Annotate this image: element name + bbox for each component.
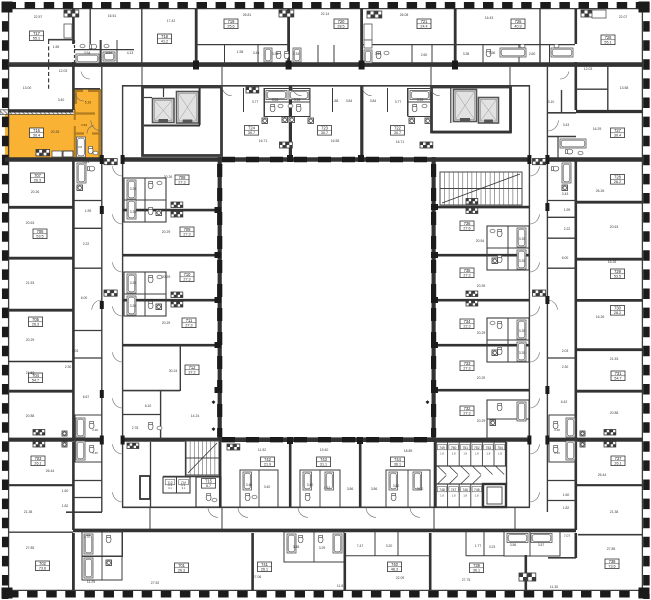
- svg-text:27.06: 27.06: [253, 575, 262, 579]
- svg-text:12.03: 12.03: [584, 67, 593, 71]
- svg-text:3.41: 3.41: [375, 52, 382, 56]
- svg-text:54.7: 54.7: [614, 377, 621, 381]
- svg-text:21.38: 21.38: [24, 510, 33, 514]
- svg-text:711: 711: [186, 318, 193, 323]
- svg-text:16.51: 16.51: [108, 14, 117, 18]
- svg-text:41.2: 41.2: [161, 40, 168, 44]
- svg-text:1.8: 1.8: [475, 452, 479, 456]
- svg-text:3.34: 3.34: [106, 51, 113, 55]
- svg-text:737: 737: [615, 456, 623, 461]
- svg-text:738: 738: [609, 559, 617, 564]
- svg-text:53.5: 53.5: [36, 235, 43, 239]
- svg-text:3.35: 3.35: [554, 451, 560, 455]
- svg-text:30.4: 30.4: [33, 134, 40, 138]
- svg-text:54.7: 54.7: [32, 379, 39, 383]
- svg-text:6.42: 6.42: [561, 400, 568, 404]
- svg-text:16.29: 16.29: [593, 127, 602, 131]
- svg-text:7.07: 7.07: [564, 534, 571, 538]
- svg-text:26.26: 26.26: [596, 189, 605, 193]
- svg-text:21.53: 21.53: [26, 371, 35, 375]
- svg-text:19.40: 19.40: [320, 448, 329, 452]
- svg-text:30.24: 30.24: [169, 369, 178, 373]
- svg-text:21.53: 21.53: [26, 281, 35, 285]
- svg-text:701: 701: [178, 563, 186, 568]
- svg-text:4.13: 4.13: [127, 51, 134, 55]
- svg-text:706: 706: [37, 229, 45, 234]
- svg-text:703: 703: [35, 456, 43, 461]
- svg-text:3.23: 3.23: [489, 545, 496, 549]
- svg-text:748: 748: [439, 488, 445, 492]
- svg-text:6.00: 6.00: [562, 256, 569, 260]
- svg-text:26.44: 26.44: [598, 473, 607, 477]
- svg-text:40.9: 40.9: [514, 25, 521, 29]
- svg-text:20.29: 20.29: [477, 331, 486, 335]
- svg-text:3.34: 3.34: [272, 52, 279, 56]
- svg-text:735: 735: [464, 268, 472, 273]
- svg-text:20.29: 20.29: [162, 230, 171, 234]
- svg-text:20.29: 20.29: [477, 376, 486, 380]
- svg-text:719: 719: [228, 19, 236, 24]
- svg-text:3.35: 3.35: [519, 237, 526, 241]
- svg-text:25.6: 25.6: [227, 25, 234, 29]
- svg-text:705: 705: [32, 317, 40, 322]
- svg-text:727: 727: [614, 128, 622, 133]
- svg-text:22.3: 22.3: [463, 325, 470, 329]
- svg-text:3.84: 3.84: [370, 99, 377, 103]
- svg-text:1.8: 1.8: [463, 494, 467, 498]
- svg-text:1.8: 1.8: [452, 452, 456, 456]
- svg-text:750: 750: [451, 446, 457, 450]
- svg-text:718: 718: [161, 34, 169, 39]
- svg-text:3.38: 3.38: [463, 52, 470, 56]
- svg-text:20.29: 20.29: [162, 275, 171, 279]
- svg-text:3.86: 3.86: [371, 487, 378, 491]
- svg-text:1.8: 1.8: [452, 494, 456, 498]
- svg-text:741: 741: [261, 562, 269, 567]
- svg-text:7.70: 7.70: [84, 535, 91, 539]
- svg-text:27.52: 27.52: [151, 581, 160, 585]
- svg-text:37.2: 37.2: [188, 371, 195, 375]
- svg-text:3.34: 3.34: [272, 98, 279, 102]
- svg-text:722: 722: [394, 125, 402, 130]
- svg-text:3.43: 3.43: [563, 123, 570, 127]
- svg-text:26.3: 26.3: [32, 323, 39, 327]
- svg-text:3.40: 3.40: [58, 98, 65, 102]
- svg-text:754: 754: [497, 446, 503, 450]
- svg-text:26.1: 26.1: [34, 462, 41, 466]
- svg-text:1.99: 1.99: [85, 209, 92, 213]
- svg-text:3.35: 3.35: [519, 259, 526, 263]
- svg-text:1.98: 1.98: [237, 50, 244, 54]
- svg-text:3.34: 3.34: [294, 98, 301, 102]
- svg-text:3.86: 3.86: [347, 487, 354, 491]
- svg-text:11.25: 11.25: [87, 580, 95, 584]
- svg-text:753: 753: [486, 446, 492, 450]
- svg-text:22.07: 22.07: [619, 15, 628, 19]
- svg-text:27.3: 27.3: [463, 412, 470, 416]
- svg-text:17.42: 17.42: [167, 19, 176, 23]
- svg-text:742: 742: [264, 457, 272, 462]
- svg-text:20.88: 20.88: [610, 411, 619, 415]
- svg-text:715: 715: [205, 478, 213, 483]
- svg-text:5.7: 5.7: [206, 484, 211, 488]
- svg-text:73.6: 73.6: [39, 567, 46, 571]
- svg-text:26.81: 26.81: [243, 13, 252, 17]
- svg-text:736: 736: [464, 221, 472, 226]
- svg-text:731: 731: [615, 371, 623, 376]
- svg-text:27.3: 27.3: [185, 324, 192, 328]
- svg-text:20.63: 20.63: [26, 221, 35, 225]
- svg-text:3.88: 3.88: [293, 545, 300, 549]
- svg-text:4.33: 4.33: [324, 486, 331, 490]
- svg-text:3.54: 3.54: [84, 51, 91, 55]
- svg-text:✱: ✱: [211, 427, 215, 433]
- svg-text:21.38: 21.38: [610, 510, 619, 514]
- svg-text:27.85: 27.85: [607, 547, 616, 551]
- svg-text:3.43: 3.43: [562, 192, 569, 196]
- svg-text:3.40: 3.40: [307, 483, 314, 487]
- svg-text:16.71: 16.71: [259, 139, 268, 143]
- svg-text:720: 720: [338, 19, 346, 24]
- svg-text:747: 747: [451, 488, 457, 492]
- svg-text:726: 726: [605, 35, 613, 40]
- svg-text:2.22: 2.22: [83, 242, 90, 246]
- svg-text:2.03: 2.03: [562, 349, 569, 353]
- svg-text:✱: ✱: [211, 400, 215, 406]
- svg-text:3.40: 3.40: [417, 487, 424, 491]
- svg-text:1.60: 1.60: [62, 489, 69, 493]
- svg-text:20.29: 20.29: [26, 338, 35, 342]
- svg-text:745: 745: [474, 488, 480, 492]
- svg-text:6.67: 6.67: [83, 395, 90, 399]
- svg-text:1.8: 1.8: [475, 494, 479, 498]
- svg-text:3.8: 3.8: [78, 145, 82, 149]
- svg-text:749: 749: [439, 446, 445, 450]
- svg-text:1.8: 1.8: [440, 452, 444, 456]
- svg-text:733: 733: [464, 361, 472, 366]
- svg-text:3.80: 3.80: [393, 484, 400, 488]
- svg-text:16.43: 16.43: [485, 16, 494, 20]
- svg-text:12.03: 12.03: [59, 69, 68, 73]
- svg-text:732: 732: [464, 406, 472, 411]
- svg-text:36.1: 36.1: [473, 569, 480, 573]
- svg-text:26.3: 26.3: [178, 569, 185, 573]
- svg-text:3.77: 3.77: [252, 100, 259, 104]
- svg-text:5.10: 5.10: [85, 101, 92, 105]
- svg-text:1.99: 1.99: [564, 208, 571, 212]
- svg-text:702: 702: [39, 561, 47, 566]
- svg-text:27.3: 27.3: [183, 233, 190, 237]
- svg-text:16.26: 16.26: [608, 260, 617, 264]
- svg-text:717: 717: [33, 31, 41, 36]
- svg-text:53.5: 53.5: [614, 275, 621, 279]
- svg-text:55.1: 55.1: [33, 37, 40, 41]
- svg-text:1.77: 1.77: [475, 544, 482, 548]
- svg-text:728: 728: [614, 174, 622, 179]
- svg-text:1.55: 1.55: [53, 45, 60, 49]
- svg-text:3.40: 3.40: [264, 485, 271, 489]
- svg-text:28.2: 28.2: [614, 180, 621, 184]
- svg-text:✱: ✱: [425, 400, 429, 406]
- svg-text:22.14: 22.14: [321, 12, 330, 16]
- svg-text:20.54: 20.54: [476, 239, 485, 243]
- svg-text:11.52: 11.52: [258, 448, 266, 452]
- svg-text:55.1: 55.1: [604, 41, 611, 45]
- svg-text:16.55: 16.55: [331, 139, 340, 143]
- svg-text:1.60: 1.60: [563, 493, 570, 497]
- svg-text:3.35: 3.35: [130, 210, 137, 214]
- svg-text:712: 712: [189, 365, 197, 370]
- svg-text:30.7: 30.7: [248, 131, 255, 135]
- svg-text:11.30: 11.30: [550, 585, 558, 589]
- svg-text:3.10: 3.10: [548, 100, 555, 104]
- svg-text:13.00: 13.00: [23, 86, 32, 90]
- svg-text:14.24: 14.24: [191, 414, 200, 418]
- svg-text:3.34: 3.34: [417, 98, 424, 102]
- svg-text:13.58: 13.58: [620, 86, 629, 90]
- svg-text:1.8: 1.8: [440, 494, 444, 498]
- svg-text:3.43: 3.43: [253, 51, 260, 55]
- svg-text:1.88: 1.88: [332, 99, 339, 103]
- svg-text:20.29: 20.29: [162, 321, 171, 325]
- svg-text:2.60: 2.60: [421, 53, 428, 57]
- svg-text:24.4: 24.4: [420, 25, 427, 29]
- svg-text:734: 734: [464, 319, 472, 324]
- svg-text:3.84: 3.84: [346, 99, 353, 103]
- svg-text:21.9: 21.9: [264, 463, 271, 467]
- svg-text:20.29: 20.29: [477, 419, 486, 423]
- svg-text:744: 744: [394, 457, 402, 462]
- svg-text:28.2: 28.2: [614, 311, 621, 315]
- svg-text:3.35: 3.35: [92, 451, 98, 455]
- svg-text:7.47: 7.47: [357, 544, 364, 548]
- svg-text:48.3: 48.3: [391, 568, 398, 572]
- svg-text:2.03: 2.03: [72, 349, 79, 353]
- svg-text:20.26: 20.26: [51, 130, 60, 134]
- svg-text:2.30: 2.30: [562, 365, 569, 369]
- svg-text:3.20: 3.20: [386, 544, 393, 548]
- svg-text:26.1: 26.1: [614, 462, 621, 466]
- svg-text:723: 723: [321, 125, 329, 130]
- svg-text:716: 716: [33, 128, 41, 133]
- svg-text:26.44: 26.44: [46, 469, 55, 473]
- svg-text:6.10: 6.10: [145, 404, 152, 408]
- svg-text:27.6: 27.6: [463, 227, 470, 231]
- svg-text:26.08: 26.08: [400, 13, 409, 17]
- svg-text:3.34: 3.34: [293, 52, 300, 56]
- svg-text:26.3: 26.3: [34, 179, 41, 183]
- svg-text:729: 729: [614, 269, 622, 274]
- svg-text:751: 751: [462, 446, 468, 450]
- svg-text:2.60: 2.60: [529, 52, 536, 56]
- svg-text:3.77: 3.77: [395, 100, 402, 104]
- svg-text:3.35: 3.35: [519, 329, 526, 333]
- svg-text:1.82: 1.82: [62, 504, 69, 508]
- svg-text:30.7: 30.7: [394, 131, 401, 135]
- svg-text:27.3: 27.3: [178, 181, 185, 185]
- svg-text:3.56: 3.56: [510, 543, 517, 547]
- svg-text:73.6: 73.6: [608, 565, 615, 569]
- svg-text:740: 740: [391, 562, 399, 567]
- svg-text:31.1: 31.1: [320, 463, 327, 467]
- svg-text:709: 709: [184, 227, 192, 232]
- svg-text:2.22: 2.22: [564, 227, 571, 231]
- svg-text:714: 714: [181, 481, 186, 485]
- svg-text:1.8: 1.8: [498, 452, 502, 456]
- svg-text:3.36: 3.36: [489, 51, 496, 55]
- svg-text:3.29: 3.29: [319, 546, 326, 550]
- svg-text:6.00: 6.00: [81, 296, 88, 300]
- svg-text:27.85: 27.85: [26, 546, 35, 550]
- svg-text:30.4: 30.4: [614, 134, 621, 138]
- svg-text:27.3: 27.3: [463, 367, 470, 371]
- svg-text:3.28: 3.28: [554, 428, 560, 432]
- svg-text:3.43: 3.43: [83, 160, 90, 164]
- svg-text:3.1: 3.1: [182, 486, 186, 490]
- svg-text:724: 724: [248, 125, 256, 130]
- svg-text:16.71: 16.71: [396, 140, 405, 144]
- svg-text:2.30: 2.30: [65, 365, 72, 369]
- svg-text:26.1: 26.1: [261, 568, 268, 572]
- svg-text:3.28: 3.28: [92, 428, 98, 432]
- svg-text:713: 713: [167, 481, 172, 485]
- svg-text:3.63: 3.63: [81, 123, 87, 127]
- svg-text:20.26: 20.26: [31, 190, 40, 194]
- svg-text:22.09: 22.09: [396, 576, 405, 580]
- svg-text:725: 725: [515, 19, 523, 24]
- svg-text:708: 708: [179, 175, 187, 180]
- svg-text:3.35: 3.35: [130, 281, 137, 285]
- svg-text:16.26: 16.26: [596, 315, 605, 319]
- svg-text:36.1: 36.1: [394, 463, 401, 467]
- svg-text:3.35: 3.35: [130, 304, 137, 308]
- svg-text:27.3: 27.3: [183, 278, 190, 282]
- svg-text:3.35: 3.35: [519, 351, 526, 355]
- svg-text:2.78: 2.78: [132, 426, 139, 430]
- svg-text:1.8: 1.8: [487, 452, 491, 456]
- svg-text:3.1: 3.1: [168, 486, 172, 490]
- svg-text:27.75: 27.75: [462, 578, 471, 582]
- svg-text:28.5: 28.5: [337, 25, 344, 29]
- svg-text:22.57: 22.57: [34, 15, 43, 19]
- svg-text:18.89: 18.89: [404, 449, 413, 453]
- svg-text:1.82: 1.82: [563, 506, 570, 510]
- svg-text:730: 730: [614, 305, 622, 310]
- svg-text:721: 721: [421, 19, 429, 24]
- svg-text:739: 739: [473, 563, 481, 568]
- svg-text:3.57: 3.57: [538, 543, 545, 547]
- svg-text:3.35: 3.35: [130, 187, 137, 191]
- svg-text:1.8: 1.8: [463, 452, 467, 456]
- svg-text:20.88: 20.88: [26, 414, 35, 418]
- svg-text:20.63: 20.63: [610, 225, 619, 229]
- svg-text:743: 743: [320, 457, 328, 462]
- svg-text:21.53: 21.53: [610, 357, 619, 361]
- svg-text:27.3: 27.3: [463, 274, 470, 278]
- svg-text:30.7: 30.7: [321, 131, 328, 135]
- svg-text:746: 746: [462, 488, 468, 492]
- svg-text:20.26: 20.26: [164, 175, 173, 179]
- svg-text:3.40: 3.40: [246, 483, 253, 487]
- svg-text:752: 752: [474, 446, 480, 450]
- svg-text:710: 710: [184, 272, 192, 277]
- svg-text:20.39: 20.39: [477, 284, 486, 288]
- svg-text:11.81: 11.81: [337, 584, 345, 588]
- svg-text:707: 707: [34, 173, 42, 178]
